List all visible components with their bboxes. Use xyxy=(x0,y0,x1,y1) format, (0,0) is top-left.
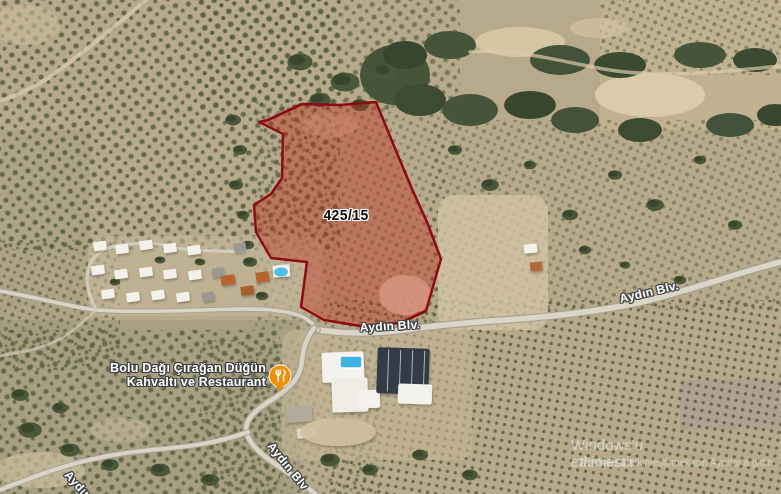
restaurant-name[interactable]: Bolu Dağı Çırağan Düğün Kahvaltı ve Rest… xyxy=(110,361,266,389)
restaurant-name-line1: Bolu Dağı Çırağan Düğün xyxy=(110,361,266,375)
restaurant-pin[interactable] xyxy=(268,364,292,388)
hotel-pool xyxy=(340,356,362,368)
villa-pool xyxy=(274,268,288,277)
pin-tail xyxy=(276,385,284,392)
satellite-map[interactable]: 425/15 Aydın Blv. Aydın Blv. Aydın Blv A… xyxy=(0,0,781,494)
aerial-imagery xyxy=(0,0,781,494)
restaurant-name-line2: Kahvaltı ve Restaurant xyxy=(110,375,266,389)
